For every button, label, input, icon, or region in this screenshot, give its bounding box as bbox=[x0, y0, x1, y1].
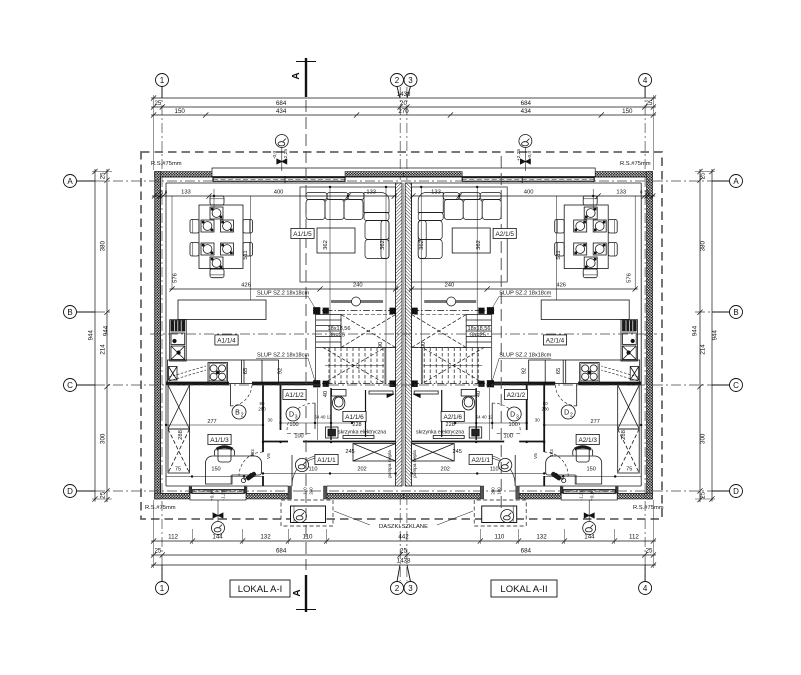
svg-text:110: 110 bbox=[494, 534, 504, 541]
svg-text:684: 684 bbox=[521, 100, 532, 107]
svg-text:362: 362 bbox=[323, 240, 329, 250]
svg-text:SLUP SZ.2 18x18cm: SLUP SZ.2 18x18cm bbox=[257, 353, 309, 359]
svg-text:65: 65 bbox=[556, 368, 562, 374]
svg-text:200: 200 bbox=[542, 407, 550, 412]
svg-text:200: 200 bbox=[309, 487, 314, 495]
svg-text:LOKAL A-II: LOKAL A-II bbox=[500, 584, 547, 595]
svg-text:A1/1/2: A1/1/2 bbox=[285, 392, 304, 399]
svg-text:A2/1/3: A2/1/3 bbox=[578, 437, 597, 444]
svg-text:pompa ciepla: pompa ciepla bbox=[412, 450, 417, 478]
svg-text:434: 434 bbox=[276, 108, 287, 115]
svg-text:-0,0: -0,0 bbox=[272, 151, 278, 160]
svg-text:183: 183 bbox=[549, 449, 554, 457]
svg-text:362: 362 bbox=[380, 240, 386, 250]
svg-text:576: 576 bbox=[173, 273, 179, 283]
svg-text:-0,0: -0,0 bbox=[527, 151, 533, 160]
svg-text:132: 132 bbox=[260, 534, 271, 541]
svg-text:25: 25 bbox=[154, 548, 161, 555]
svg-text:B: B bbox=[235, 409, 240, 416]
svg-text:A2/1/1: A2/1/1 bbox=[471, 457, 490, 464]
svg-text:511: 511 bbox=[243, 250, 249, 259]
svg-text:202: 202 bbox=[441, 467, 450, 473]
svg-text:150: 150 bbox=[587, 467, 596, 473]
svg-text:944: 944 bbox=[103, 325, 110, 336]
svg-text:944: 944 bbox=[87, 330, 94, 341]
svg-text:A: A bbox=[292, 589, 303, 596]
svg-text:80: 80 bbox=[260, 401, 265, 406]
svg-text:D: D bbox=[510, 411, 515, 418]
svg-text:245: 245 bbox=[345, 449, 354, 455]
svg-text:+2,25: +2,25 bbox=[283, 149, 289, 161]
svg-text:288: 288 bbox=[178, 430, 184, 440]
svg-text:245: 245 bbox=[453, 449, 462, 455]
svg-text:133: 133 bbox=[431, 189, 441, 195]
svg-text:100: 100 bbox=[303, 487, 308, 495]
svg-text:A1/1/4: A1/1/4 bbox=[217, 337, 236, 344]
svg-text:40: 40 bbox=[323, 391, 329, 397]
svg-text:2: 2 bbox=[395, 584, 400, 593]
svg-text:R.S.#75mm: R.S.#75mm bbox=[145, 505, 176, 511]
svg-text:400: 400 bbox=[524, 189, 534, 195]
svg-text:25: 25 bbox=[99, 491, 106, 498]
svg-text:A2/1/4: A2/1/4 bbox=[546, 337, 565, 344]
svg-text:75: 75 bbox=[175, 467, 181, 473]
svg-text:25: 25 bbox=[646, 548, 653, 555]
svg-text:3h=25: 3h=25 bbox=[470, 333, 486, 339]
svg-text:183: 183 bbox=[250, 449, 255, 457]
svg-text:A: A bbox=[67, 177, 73, 186]
svg-text:133: 133 bbox=[616, 189, 626, 195]
svg-text:B: B bbox=[733, 308, 738, 317]
svg-text:112: 112 bbox=[629, 534, 639, 541]
svg-text:4: 4 bbox=[643, 76, 648, 85]
svg-text:200: 200 bbox=[491, 487, 496, 495]
svg-text:684: 684 bbox=[521, 548, 532, 555]
svg-text:288: 288 bbox=[621, 430, 627, 440]
svg-text:C: C bbox=[733, 381, 739, 390]
svg-text:362: 362 bbox=[476, 240, 482, 250]
svg-text:228: 228 bbox=[352, 422, 361, 428]
svg-text:SLUP SZ.2 18x18cm: SLUP SZ.2 18x18cm bbox=[257, 291, 309, 297]
svg-text:C: C bbox=[67, 381, 73, 390]
svg-text:80: 80 bbox=[543, 401, 548, 406]
svg-text:3h=25: 3h=25 bbox=[329, 333, 345, 339]
svg-text:4: 4 bbox=[643, 584, 648, 593]
svg-text:92: 92 bbox=[522, 368, 528, 374]
svg-text:2: 2 bbox=[395, 76, 400, 85]
svg-text:3: 3 bbox=[295, 414, 298, 420]
svg-text:228: 228 bbox=[446, 422, 455, 428]
svg-text:-1,25: -1,25 bbox=[221, 489, 227, 500]
svg-text:511: 511 bbox=[556, 250, 562, 259]
svg-text:90: 90 bbox=[421, 342, 427, 348]
svg-text:A1/1/6: A1/1/6 bbox=[345, 414, 364, 421]
svg-text:75: 75 bbox=[626, 467, 632, 473]
svg-text:+0,86: +0,86 bbox=[210, 489, 216, 501]
svg-text:skrzynka elektryczna: skrzynka elektryczna bbox=[416, 430, 464, 436]
svg-text:R.S.#75mm: R.S.#75mm bbox=[151, 161, 182, 167]
svg-text:A2/1/6: A2/1/6 bbox=[443, 414, 462, 421]
svg-text:684: 684 bbox=[276, 100, 287, 107]
svg-text:SLUP SZ.2 18x18cm: SLUP SZ.2 18x18cm bbox=[499, 291, 551, 297]
svg-text:54 40 12: 54 40 12 bbox=[476, 415, 494, 420]
svg-text:25: 25 bbox=[700, 172, 707, 179]
svg-text:-1,25: -1,25 bbox=[579, 489, 585, 500]
svg-text:DASZKI SZKLANE: DASZKI SZKLANE bbox=[379, 524, 428, 530]
svg-text:944: 944 bbox=[712, 330, 719, 341]
svg-text:400: 400 bbox=[274, 189, 284, 195]
svg-text:202: 202 bbox=[357, 467, 366, 473]
svg-text:20: 20 bbox=[400, 100, 407, 107]
svg-text:3: 3 bbox=[408, 584, 413, 593]
svg-text:300: 300 bbox=[700, 433, 707, 444]
svg-text:A2/1/2: A2/1/2 bbox=[507, 392, 526, 399]
svg-text:110: 110 bbox=[303, 534, 313, 541]
svg-text:380: 380 bbox=[700, 241, 707, 252]
svg-text:200: 200 bbox=[258, 407, 266, 412]
svg-text:150: 150 bbox=[622, 108, 633, 115]
svg-text:+0,86: +0,86 bbox=[590, 489, 596, 501]
svg-text:1: 1 bbox=[160, 584, 165, 593]
svg-text:54 40 12: 54 40 12 bbox=[314, 415, 332, 420]
svg-text:100: 100 bbox=[504, 434, 513, 440]
svg-text:132: 132 bbox=[536, 534, 547, 541]
svg-text:214: 214 bbox=[99, 344, 106, 355]
svg-text:380: 380 bbox=[99, 241, 106, 252]
svg-text:150: 150 bbox=[175, 108, 186, 115]
svg-text:SLUP SZ.2 18x18cm: SLUP SZ.2 18x18cm bbox=[499, 353, 551, 359]
svg-text:R.S.#75mm: R.S.#75mm bbox=[633, 505, 664, 511]
svg-text:100: 100 bbox=[497, 487, 502, 495]
svg-text:214: 214 bbox=[700, 344, 707, 355]
svg-text:30: 30 bbox=[535, 418, 540, 423]
svg-text:144: 144 bbox=[212, 534, 223, 541]
svg-text:skrzynka elektryczna: skrzynka elektryczna bbox=[338, 430, 386, 436]
svg-text:V5: V5 bbox=[533, 453, 538, 459]
svg-text:D: D bbox=[733, 487, 739, 496]
svg-text:16: 16 bbox=[158, 190, 163, 195]
svg-text:1438: 1438 bbox=[397, 558, 411, 565]
svg-text:684: 684 bbox=[276, 548, 287, 555]
svg-text:240: 240 bbox=[445, 282, 455, 288]
svg-text:A1/1/3: A1/1/3 bbox=[210, 437, 229, 444]
svg-text:25: 25 bbox=[646, 100, 653, 107]
svg-text:25: 25 bbox=[99, 172, 106, 179]
svg-text:240: 240 bbox=[353, 282, 363, 288]
svg-text:362: 362 bbox=[419, 240, 425, 250]
svg-text:+2,25: +2,25 bbox=[516, 149, 522, 161]
svg-text:B: B bbox=[67, 308, 72, 317]
svg-text:R.S.#75mm: R.S.#75mm bbox=[620, 161, 651, 167]
svg-text:30: 30 bbox=[268, 418, 273, 423]
svg-text:40: 40 bbox=[476, 391, 482, 397]
svg-text:426: 426 bbox=[556, 282, 566, 288]
svg-text:112: 112 bbox=[168, 534, 178, 541]
svg-text:pompa ciepla: pompa ciepla bbox=[387, 450, 392, 478]
svg-text:D: D bbox=[564, 409, 569, 416]
svg-text:LOKAL A-I: LOKAL A-I bbox=[238, 584, 283, 595]
svg-text:1: 1 bbox=[160, 76, 165, 85]
svg-text:A1/1/5: A1/1/5 bbox=[293, 231, 312, 238]
svg-text:110: 110 bbox=[309, 467, 318, 473]
svg-text:300: 300 bbox=[99, 433, 106, 444]
svg-text:V5: V5 bbox=[266, 453, 271, 459]
svg-text:270: 270 bbox=[398, 108, 409, 115]
svg-text:144: 144 bbox=[584, 534, 595, 541]
svg-text:D: D bbox=[67, 487, 73, 496]
svg-text:3: 3 bbox=[516, 414, 519, 420]
svg-text:2: 2 bbox=[570, 412, 573, 418]
svg-text:18x18,56: 18x18,56 bbox=[327, 326, 350, 332]
svg-text:426: 426 bbox=[241, 282, 251, 288]
svg-text:100: 100 bbox=[289, 422, 298, 428]
svg-text:A1/1/1: A1/1/1 bbox=[317, 457, 336, 464]
svg-text:434: 434 bbox=[521, 108, 532, 115]
svg-text:100: 100 bbox=[509, 422, 518, 428]
svg-text:65: 65 bbox=[243, 368, 249, 374]
svg-text:110: 110 bbox=[490, 467, 499, 473]
svg-text:133: 133 bbox=[366, 189, 376, 195]
svg-text:25: 25 bbox=[154, 100, 161, 107]
svg-text:D: D bbox=[289, 411, 294, 418]
svg-text:100: 100 bbox=[294, 434, 303, 440]
svg-text:277: 277 bbox=[207, 419, 216, 425]
svg-text:A: A bbox=[291, 72, 302, 79]
svg-text:92: 92 bbox=[278, 368, 284, 374]
svg-text:25: 25 bbox=[700, 491, 707, 498]
svg-text:90: 90 bbox=[378, 342, 384, 348]
svg-text:A: A bbox=[733, 177, 739, 186]
svg-text:3: 3 bbox=[408, 76, 413, 85]
svg-text:150: 150 bbox=[211, 467, 220, 473]
svg-text:2: 2 bbox=[241, 412, 244, 418]
svg-text:A2/1/5: A2/1/5 bbox=[495, 231, 514, 238]
svg-text:18x18,56: 18x18,56 bbox=[467, 326, 490, 332]
svg-text:277: 277 bbox=[591, 419, 600, 425]
svg-text:442: 442 bbox=[398, 534, 409, 541]
svg-text:16: 16 bbox=[644, 190, 649, 195]
svg-text:133: 133 bbox=[181, 189, 191, 195]
svg-text:576: 576 bbox=[627, 273, 633, 283]
svg-text:25: 25 bbox=[400, 548, 407, 555]
svg-text:944: 944 bbox=[692, 325, 699, 336]
